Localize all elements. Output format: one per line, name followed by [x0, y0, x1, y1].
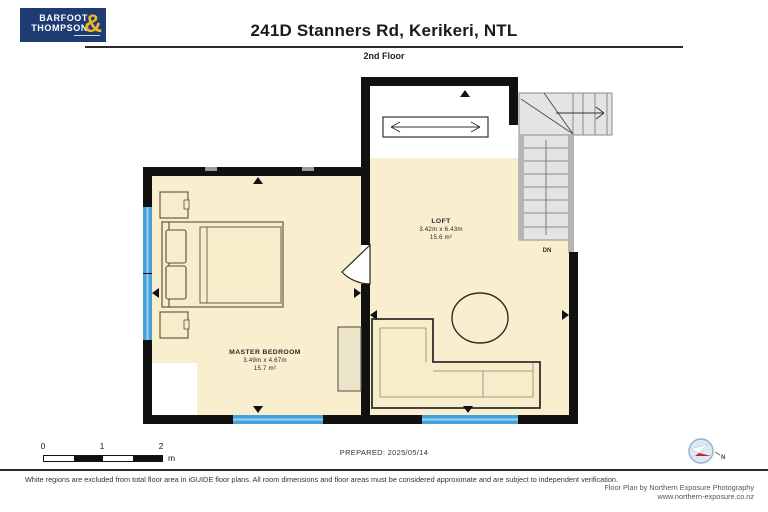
prepared-date: PREPARED: 2025/05/14 [0, 448, 768, 457]
photographer-credit: Floor Plan by Northern Exposure Photogra… [604, 483, 754, 501]
compass-north-label: N [721, 455, 725, 461]
window-left-1 [143, 207, 152, 273]
staircase: DN [519, 93, 612, 254]
floor-plan-drawing: DN [0, 0, 768, 512]
credit-line1: Floor Plan by Northern Exposure Photogra… [604, 483, 754, 492]
master-bedroom-area: 15.7 m² [254, 365, 276, 372]
rail-double-arrow [383, 117, 488, 137]
nightstand-bottom-icon [160, 312, 189, 338]
nightstand-top-icon [160, 192, 189, 218]
floor-plan-page: BARFOOT THOMPSON & 241D Stanners Rd, Ker… [0, 0, 768, 512]
master-bedroom-label: MASTER BEDROOM [229, 349, 301, 356]
excluded-area-bedroom [152, 363, 197, 415]
disclaimer-text: White regions are excluded from total fl… [25, 475, 625, 484]
credit-line2: www.northern-exposure.co.nz [604, 492, 754, 501]
footer-divider [0, 469, 768, 471]
master-bedroom-dims: 3.49m x 4.67m [243, 357, 287, 364]
window-loft-bottom [422, 415, 518, 424]
compass-icon: N [684, 436, 728, 466]
dresser-icon [338, 327, 361, 391]
loft-dims: 3.42m x 6.43m [419, 226, 463, 233]
stairs-down-label: DN [543, 248, 552, 254]
window-bedroom-bottom [233, 415, 323, 424]
loft-label: LOFT [431, 218, 451, 225]
loft-area: 15.6 m² [430, 234, 452, 241]
bed-icon [162, 222, 283, 307]
window-left-2 [143, 274, 152, 340]
